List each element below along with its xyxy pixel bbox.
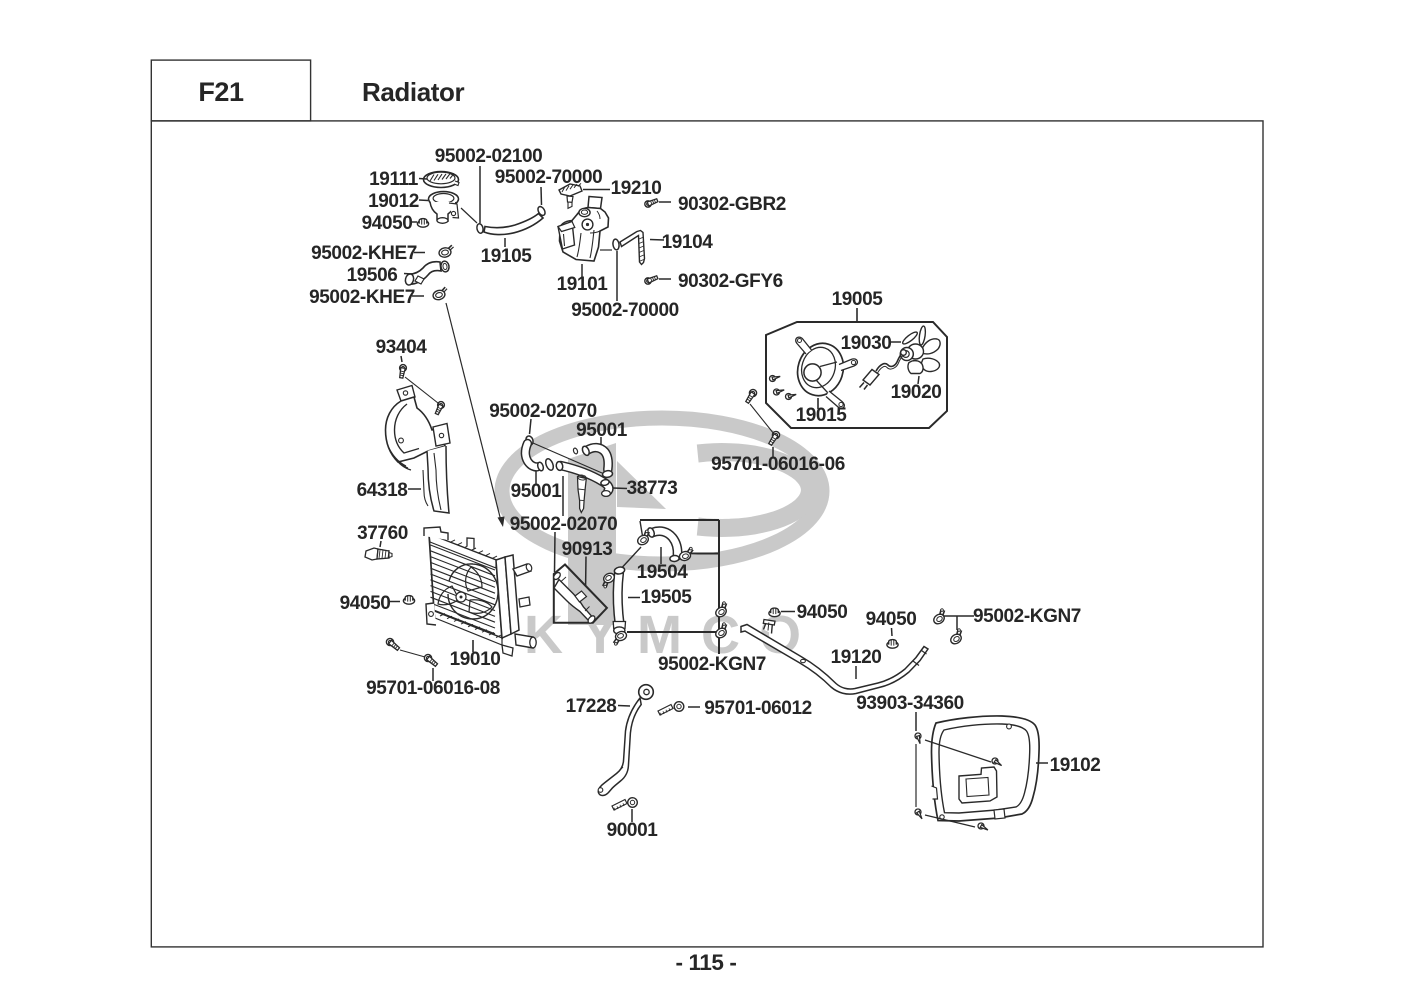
svg-text:95002-KHE7: 95002-KHE7 [309,287,415,308]
svg-text:90001: 90001 [607,820,659,841]
svg-text:19005: 19005 [832,289,884,310]
svg-text:19030: 19030 [841,333,892,354]
svg-text:19506: 19506 [347,265,398,286]
svg-text:93404: 93404 [376,337,428,358]
svg-text:19120: 19120 [831,647,882,668]
svg-text:95002-KGN7: 95002-KGN7 [973,606,1081,627]
svg-text:95001: 95001 [576,420,628,441]
svg-text:Radiator: Radiator [362,77,465,107]
svg-text:38773: 38773 [627,478,678,499]
svg-text:95002-70000: 95002-70000 [495,167,603,188]
svg-text:19504: 19504 [637,562,689,583]
svg-text:17228: 17228 [566,696,617,717]
svg-text:94050: 94050 [866,609,917,630]
svg-text:95002-KGN7: 95002-KGN7 [658,654,766,675]
svg-text:95701-06012: 95701-06012 [704,698,812,719]
svg-text:19102: 19102 [1050,755,1101,776]
svg-text:95701-06016-06: 95701-06016-06 [711,454,845,475]
svg-text:37760: 37760 [357,523,408,544]
svg-text:64318: 64318 [357,480,408,501]
svg-text:19015: 19015 [796,405,848,426]
svg-text:95701-06016-08: 95701-06016-08 [366,678,500,699]
svg-text:95002-02070: 95002-02070 [489,401,597,422]
svg-text:95002-02100: 95002-02100 [435,146,543,167]
svg-text:19010: 19010 [450,649,501,670]
svg-text:94050: 94050 [797,602,848,623]
svg-text:90302-GBR2: 90302-GBR2 [678,194,786,215]
svg-text:19020: 19020 [891,382,942,403]
svg-text:19104: 19104 [662,232,714,253]
svg-text:95002-02070: 95002-02070 [510,514,618,535]
svg-text:95001: 95001 [511,481,563,502]
svg-text:90913: 90913 [562,539,613,560]
svg-text:95002-KHE7: 95002-KHE7 [311,243,417,264]
svg-text:19111: 19111 [369,169,419,190]
svg-text:19210: 19210 [611,178,662,199]
svg-text:93903-34360: 93903-34360 [856,693,964,714]
svg-text:95002-70000: 95002-70000 [571,300,679,321]
svg-text:94050: 94050 [340,593,391,614]
svg-text:90302-GFY6: 90302-GFY6 [678,271,783,292]
svg-text:19505: 19505 [641,587,693,608]
svg-text:19105: 19105 [481,246,533,267]
svg-text:19101: 19101 [557,274,609,295]
svg-text:F21: F21 [198,77,244,107]
svg-text:19012: 19012 [368,191,419,212]
svg-text:94050: 94050 [362,213,413,234]
svg-text:- 115 -: - 115 - [676,950,737,975]
